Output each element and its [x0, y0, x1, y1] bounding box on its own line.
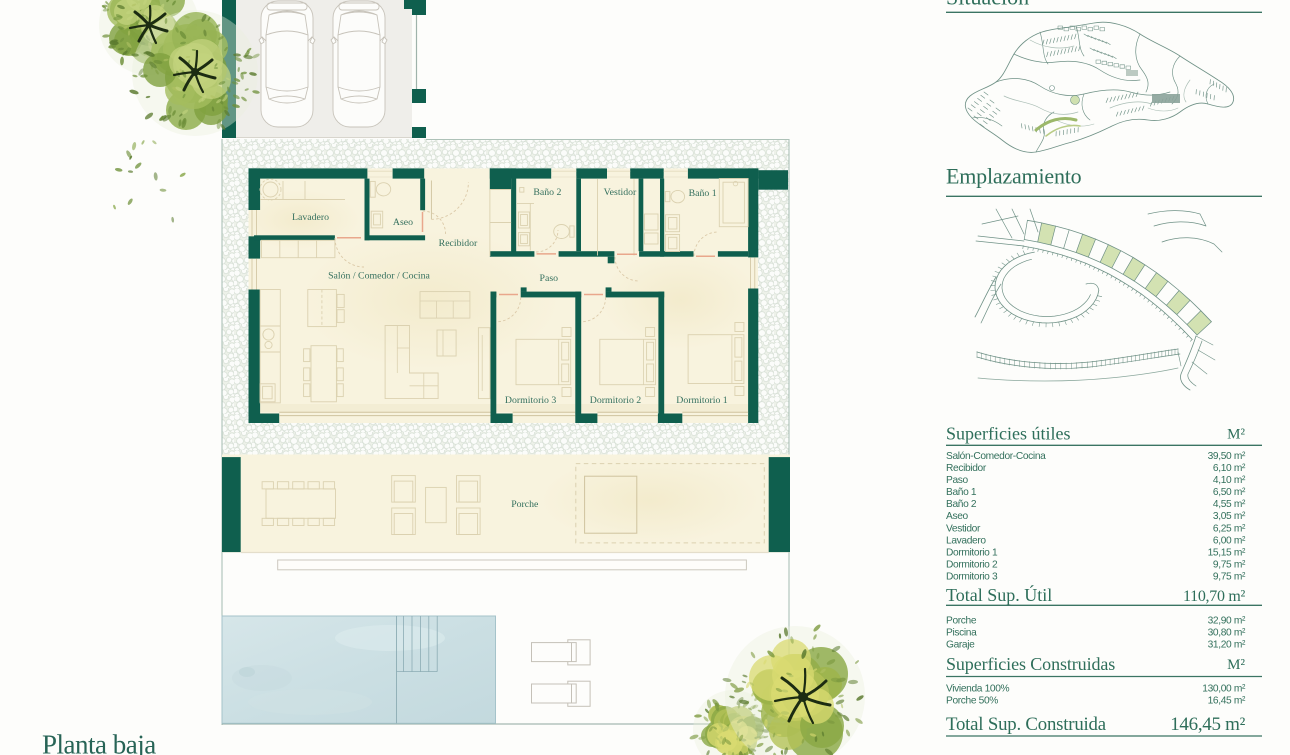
svg-text:Planta baja: Planta baja: [42, 730, 156, 755]
svg-text:Paso: Paso: [946, 475, 969, 486]
svg-text:9,75 m²: 9,75 m²: [1213, 559, 1246, 570]
svg-text:Total Sup. Útil: Total Sup. Útil: [946, 584, 1052, 605]
svg-text:3,05 m²: 3,05 m²: [1213, 511, 1246, 522]
svg-text:4,55 m²: 4,55 m²: [1213, 499, 1246, 510]
svg-text:Baño 2: Baño 2: [946, 499, 977, 510]
svg-text:Situación: Situación: [946, 0, 1029, 9]
svg-text:Dormitorio 3: Dormitorio 3: [946, 572, 998, 583]
svg-text:4,10 m²: 4,10 m²: [1213, 475, 1246, 486]
svg-text:Baño 2: Baño 2: [533, 187, 561, 198]
svg-text:30,80 m²: 30,80 m²: [1208, 628, 1246, 639]
svg-text:Aseo: Aseo: [946, 511, 969, 522]
svg-text:Superficies Construidas: Superficies Construidas: [946, 654, 1115, 674]
svg-text:Aseo: Aseo: [393, 217, 413, 228]
svg-text:32,90 m²: 32,90 m²: [1208, 616, 1246, 627]
svg-text:16,45 m²: 16,45 m²: [1208, 696, 1246, 707]
svg-text:Porche: Porche: [511, 499, 539, 510]
svg-text:Baño 1: Baño 1: [689, 188, 717, 199]
svg-text:Salón-Comedor-Cocina: Salón-Comedor-Cocina: [946, 451, 1046, 462]
svg-text:Vivienda 100%: Vivienda 100%: [946, 684, 1010, 695]
svg-text:110,70 m²: 110,70 m²: [1183, 588, 1245, 605]
svg-text:Paso: Paso: [540, 273, 559, 284]
svg-text:Recibidor: Recibidor: [946, 463, 987, 474]
svg-text:Piscina: Piscina: [946, 628, 977, 639]
svg-text:Lavadero: Lavadero: [946, 535, 986, 546]
svg-text:Dormitorio 1: Dormitorio 1: [676, 395, 728, 406]
svg-text:Dormitorio 2: Dormitorio 2: [590, 395, 642, 406]
svg-text:Emplazamiento: Emplazamiento: [946, 164, 1082, 189]
svg-text:6,50 m²: 6,50 m²: [1213, 487, 1246, 498]
svg-text:39,50 m²: 39,50 m²: [1208, 451, 1246, 462]
svg-text:6,25 m²: 6,25 m²: [1213, 523, 1246, 534]
svg-text:130,00 m²: 130,00 m²: [1202, 684, 1246, 695]
svg-text:Superficies útiles: Superficies útiles: [946, 424, 1070, 444]
svg-text:Total Sup. Construida: Total Sup. Construida: [946, 714, 1107, 735]
svg-text:M²: M²: [1227, 427, 1245, 443]
svg-text:15,15 m²: 15,15 m²: [1208, 547, 1246, 558]
svg-text:Dormitorio 3: Dormitorio 3: [505, 395, 557, 406]
svg-text:Vestidor: Vestidor: [946, 523, 981, 534]
svg-text:Salón / Comedor / Cocina: Salón / Comedor / Cocina: [328, 271, 430, 282]
svg-text:Dormitorio 2: Dormitorio 2: [946, 559, 998, 570]
svg-text:M²: M²: [1227, 657, 1245, 673]
svg-text:Porche: Porche: [946, 616, 977, 627]
svg-text:6,10 m²: 6,10 m²: [1213, 463, 1246, 474]
svg-text:9,75 m²: 9,75 m²: [1213, 572, 1246, 583]
svg-text:Recibidor: Recibidor: [439, 238, 478, 249]
svg-text:146,45 m²: 146,45 m²: [1170, 714, 1245, 735]
svg-text:Vestidor: Vestidor: [604, 187, 637, 198]
svg-text:Dormitorio 1: Dormitorio 1: [946, 547, 998, 558]
svg-text:Garaje: Garaje: [946, 640, 975, 651]
svg-text:6,00 m²: 6,00 m²: [1213, 535, 1246, 546]
svg-text:31,20 m²: 31,20 m²: [1208, 640, 1246, 651]
svg-text:Baño 1: Baño 1: [946, 487, 977, 498]
svg-text:Lavadero: Lavadero: [292, 212, 329, 223]
svg-text:Porche 50%: Porche 50%: [946, 696, 998, 707]
